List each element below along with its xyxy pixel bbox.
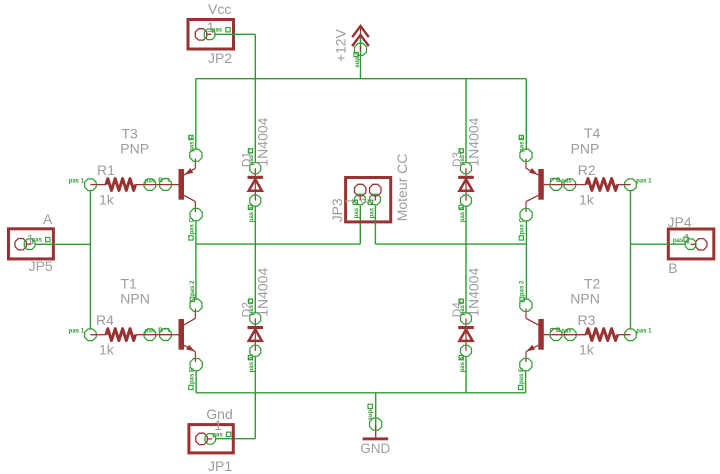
svg-text:JP3: JP3: [329, 198, 345, 222]
svg-text:1k: 1k: [99, 342, 115, 358]
svg-text:pas 1: pas 1: [636, 328, 652, 334]
svg-text:pas A: pas A: [249, 205, 255, 222]
svg-text:pas: pas: [561, 328, 572, 334]
svg-text:GND: GND: [360, 441, 390, 456]
svg-text:D2: D2: [239, 302, 253, 318]
svg-text:sup: sup: [368, 409, 374, 420]
svg-text:pas 1: pas 1: [69, 328, 85, 334]
svg-text:sup: sup: [355, 57, 361, 68]
svg-text:pas 1: pas 1: [69, 178, 85, 184]
svg-text:D3: D3: [450, 152, 464, 168]
svg-text:pas: pas: [369, 207, 375, 218]
svg-text:1k: 1k: [99, 192, 115, 208]
svg-text:T3: T3: [122, 125, 139, 141]
svg-text:B: B: [158, 177, 163, 184]
svg-text:A: A: [43, 211, 53, 227]
svg-text:T1: T1: [121, 275, 138, 291]
svg-text:pas: pas: [212, 28, 223, 34]
svg-text:PNP: PNP: [120, 140, 149, 156]
svg-text:R3: R3: [578, 312, 596, 328]
svg-text:pas: pas: [32, 238, 43, 244]
svg-text:pas C: pas C: [189, 217, 195, 234]
svg-text:pas: pas: [673, 238, 684, 244]
svg-text:+12V: +12V: [332, 28, 348, 62]
svg-text:pas 1: pas 1: [636, 178, 652, 184]
svg-text:pas A: pas A: [460, 356, 466, 373]
svg-text:PNP: PNP: [571, 140, 600, 156]
svg-text:1N4004: 1N4004: [255, 117, 271, 166]
svg-text:Moteur CC: Moteur CC: [394, 154, 410, 222]
svg-text:B: B: [556, 177, 561, 184]
svg-text:pas: pas: [145, 328, 156, 334]
svg-text:NPN: NPN: [120, 290, 150, 306]
svg-text:pas A: pas A: [460, 205, 466, 222]
svg-text:2: 2: [359, 198, 371, 204]
svg-text:pas E: pas E: [189, 368, 195, 384]
svg-text:1k: 1k: [579, 342, 595, 358]
svg-text:NPN: NPN: [570, 290, 600, 306]
svg-text:1k: 1k: [579, 192, 595, 208]
svg-text:pas E: pas E: [519, 368, 525, 384]
svg-text:pas 2: pas 2: [190, 280, 196, 296]
svg-text:pas E: pas E: [520, 136, 526, 152]
svg-text:Vcc: Vcc: [208, 1, 231, 17]
svg-text:Gnd: Gnd: [206, 406, 232, 422]
svg-text:JP5: JP5: [29, 258, 53, 274]
svg-text:JP2: JP2: [208, 50, 232, 66]
svg-text:pas 2: pas 2: [520, 280, 526, 296]
svg-text:D1: D1: [239, 152, 253, 168]
svg-text:R4: R4: [96, 312, 114, 328]
svg-text:pas E: pas E: [189, 136, 195, 152]
svg-text:1N4004: 1N4004: [465, 117, 481, 166]
svg-text:1N4004: 1N4004: [255, 268, 271, 317]
svg-text:pas: pas: [145, 178, 156, 184]
svg-text:pas C: pas C: [520, 217, 526, 234]
svg-text:1N4004: 1N4004: [465, 268, 481, 317]
svg-text:pas: pas: [561, 178, 572, 184]
svg-text:R1: R1: [97, 162, 115, 178]
svg-text:T2: T2: [584, 275, 601, 291]
svg-text:B: B: [668, 260, 677, 276]
svg-text:B: B: [158, 327, 163, 334]
svg-text:T4: T4: [584, 125, 601, 141]
svg-text:pas: pas: [212, 432, 223, 438]
svg-text:1: 1: [344, 198, 356, 204]
svg-text:pas A: pas A: [249, 356, 255, 373]
svg-text:JP4: JP4: [668, 214, 692, 230]
svg-text:B: B: [556, 327, 561, 334]
svg-text:R2: R2: [578, 162, 596, 178]
svg-text:pas: pas: [354, 207, 360, 218]
svg-text:JP1: JP1: [208, 458, 232, 474]
svg-text:D4: D4: [450, 302, 464, 318]
